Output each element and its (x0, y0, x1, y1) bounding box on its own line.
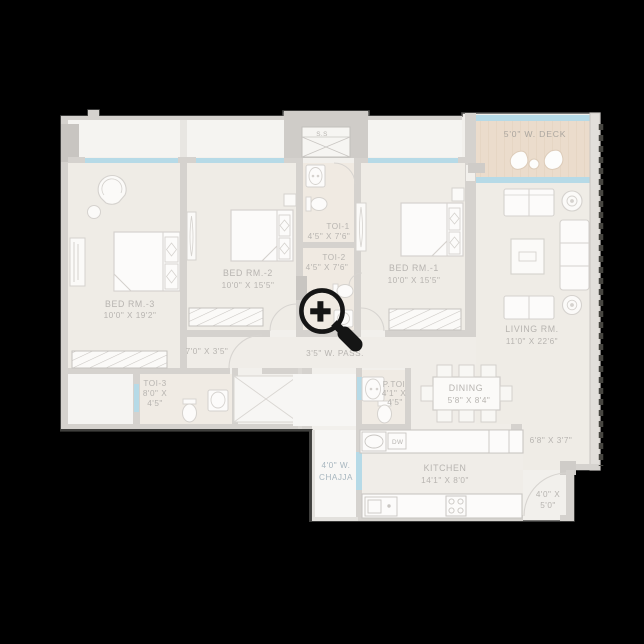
svg-text:DW: DW (392, 439, 404, 446)
svg-text:4'0" W.: 4'0" W. (322, 461, 351, 470)
svg-text:4'5": 4'5" (147, 399, 163, 408)
svg-text:P.TOI: P.TOI (383, 380, 406, 389)
svg-text:KITCHEN: KITCHEN (424, 463, 467, 473)
svg-text:7'0" X 3'5": 7'0" X 3'5" (186, 347, 229, 356)
svg-text:4'5" X 7'6": 4'5" X 7'6" (306, 263, 349, 272)
svg-text:5'0": 5'0" (540, 501, 556, 510)
svg-text:4'5" X 7'6": 4'5" X 7'6" (308, 232, 351, 241)
svg-text:5'8" X 8'4": 5'8" X 8'4" (448, 396, 491, 405)
svg-text:10'0" X 19'2": 10'0" X 19'2" (104, 311, 157, 320)
svg-text:BED RM.-1: BED RM.-1 (389, 263, 439, 273)
svg-text:11'0" X 22'6": 11'0" X 22'6" (506, 337, 558, 346)
svg-text:5'0" W. DECK: 5'0" W. DECK (504, 129, 567, 139)
svg-text:BED RM.-3: BED RM.-3 (105, 299, 155, 309)
svg-text:4'0" X: 4'0" X (536, 490, 560, 499)
svg-text:4'5": 4'5" (387, 398, 403, 407)
svg-text:TOI-3: TOI-3 (143, 379, 166, 388)
svg-text:TOI-2: TOI-2 (322, 253, 345, 262)
svg-text:4'1" X: 4'1" X (382, 389, 406, 398)
svg-text:6'8" X 3'7": 6'8" X 3'7" (530, 436, 573, 445)
svg-text:8'0" X: 8'0" X (143, 389, 167, 398)
svg-text:BED RM.-2: BED RM.-2 (223, 268, 273, 278)
svg-text:S.S: S.S (316, 131, 328, 138)
svg-text:10'0" X 15'5": 10'0" X 15'5" (222, 281, 275, 290)
svg-text:LIVING RM.: LIVING RM. (505, 324, 558, 334)
svg-text:14'1" X 8'0": 14'1" X 8'0" (421, 476, 469, 485)
svg-text:10'0" X 15'5": 10'0" X 15'5" (388, 276, 441, 285)
svg-text:CHAJJA: CHAJJA (319, 473, 353, 482)
svg-text:DINING: DINING (449, 383, 483, 393)
svg-text:TOI-1: TOI-1 (326, 222, 349, 231)
